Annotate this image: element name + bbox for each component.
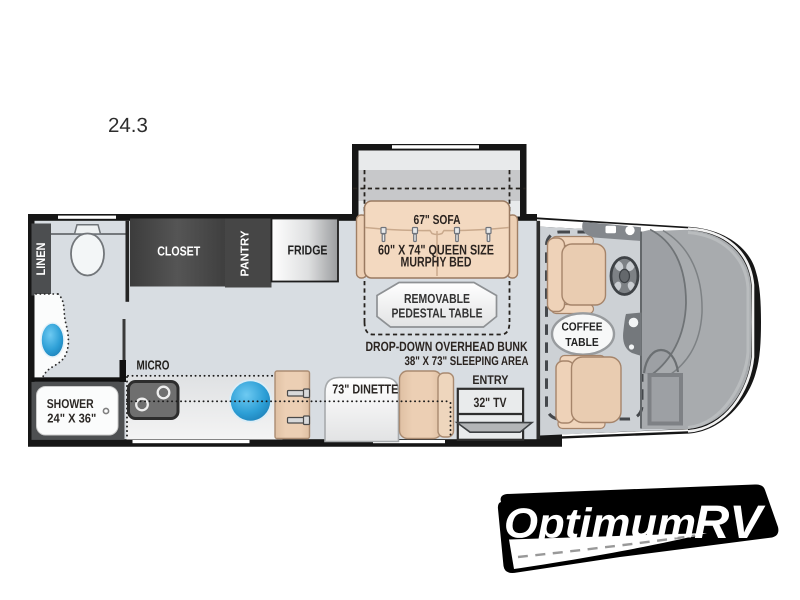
- svg-text:24" X 36": 24" X 36": [47, 410, 96, 425]
- svg-text:38" X 73" SLEEPING AREA: 38" X 73" SLEEPING AREA: [405, 354, 529, 368]
- svg-text:MICRO: MICRO: [137, 358, 170, 373]
- svg-text:DROP-DOWN OVERHEAD BUNK: DROP-DOWN OVERHEAD BUNK: [366, 339, 528, 354]
- svg-text:SHOWER: SHOWER: [47, 396, 94, 411]
- svg-text:Optimum: Optimum: [504, 500, 696, 547]
- svg-text:MURPHY BED: MURPHY BED: [401, 253, 472, 269]
- svg-text:PEDESTAL TABLE: PEDESTAL TABLE: [392, 306, 483, 321]
- svg-text:LINEN: LINEN: [34, 243, 48, 276]
- svg-text:24.3: 24.3: [108, 114, 148, 137]
- svg-text:ENTRY: ENTRY: [472, 373, 509, 387]
- svg-text:32" TV: 32" TV: [474, 395, 507, 410]
- svg-text:73" DINETTE: 73" DINETTE: [332, 381, 398, 396]
- svg-text:CLOSET: CLOSET: [157, 244, 200, 259]
- svg-text:PANTRY: PANTRY: [240, 230, 252, 276]
- svg-text:REMOVABLE: REMOVABLE: [404, 291, 470, 306]
- svg-text:COFFEE: COFFEE: [562, 321, 603, 334]
- svg-text:FRIDGE: FRIDGE: [288, 243, 328, 258]
- svg-text:RV: RV: [694, 495, 766, 548]
- svg-text:67" SOFA: 67" SOFA: [414, 212, 461, 227]
- svg-text:TABLE: TABLE: [565, 336, 599, 349]
